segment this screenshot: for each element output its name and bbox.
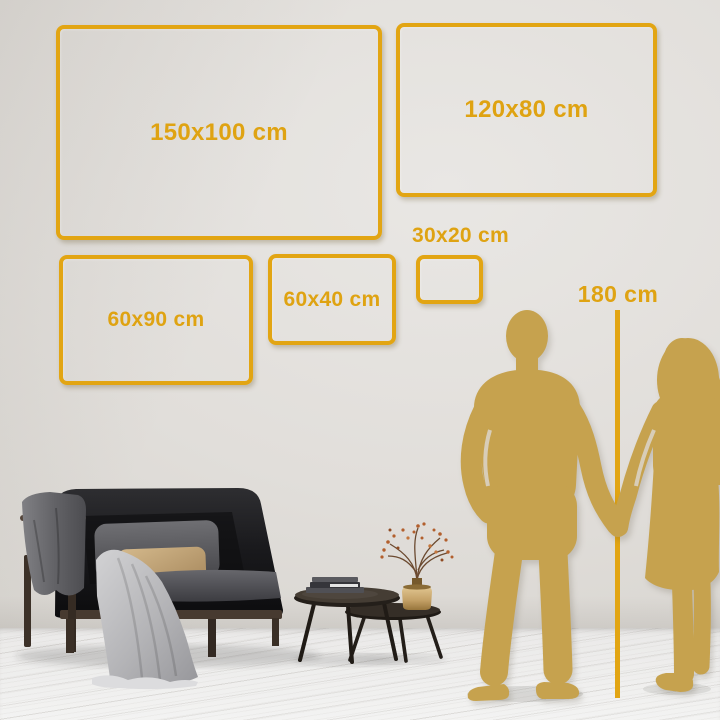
silhouette-man (468, 310, 627, 701)
man-right-arm (571, 410, 617, 525)
sofa-leg (208, 619, 216, 657)
size-frame-60x90: 60x90 cm (59, 255, 253, 385)
woman-head (663, 338, 701, 386)
silhouette-woman (612, 338, 720, 692)
size-frame-30x20 (416, 255, 483, 304)
woman-back-leg (701, 584, 702, 666)
size-frame-150x100: 150x100 cm (56, 25, 382, 240)
size-label-30x20: 30x20 cm (412, 224, 509, 248)
sofa-leg (66, 619, 74, 653)
size-label-120x80: 120x80 cm (464, 96, 588, 124)
size-guide-scene: 150x100 cm 120x80 cm 60x90 cm 60x40 cm 3… (0, 0, 720, 720)
man-left-leg (494, 552, 509, 672)
size-frame-120x80: 120x80 cm (396, 23, 657, 197)
size-label-60x90: 60x90 cm (108, 308, 205, 332)
couple-silhouettes (430, 300, 720, 712)
man-right-foot (536, 682, 579, 699)
sofa-leg (272, 618, 279, 646)
size-frame-60x40: 60x40 cm (268, 254, 396, 345)
man-right-leg (553, 552, 558, 670)
man-left-foot (468, 684, 509, 701)
books-stack (306, 577, 364, 593)
size-label-60x40: 60x40 cm (284, 288, 381, 312)
living-room-furniture (0, 460, 470, 720)
blanket-over-arm (22, 492, 86, 596)
woman-front-leg (682, 584, 684, 674)
woman-skirt (645, 462, 719, 590)
size-label-150x100: 150x100 cm (150, 119, 288, 147)
